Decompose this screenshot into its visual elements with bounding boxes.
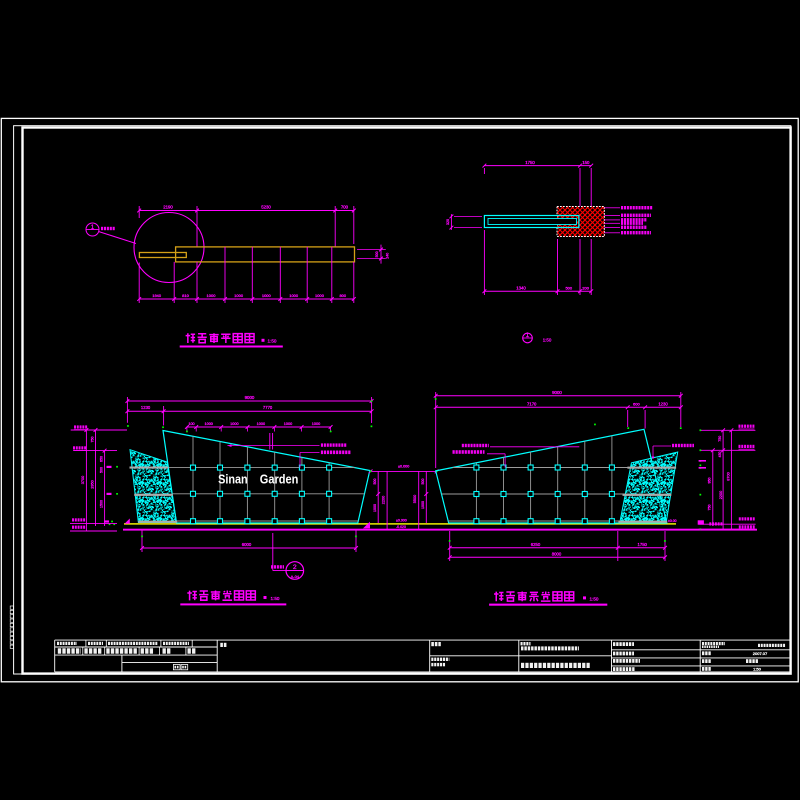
svg-text:1:50: 1:50	[268, 339, 277, 344]
svg-text:2007.07: 2007.07	[753, 651, 768, 656]
svg-text:750: 750	[90, 437, 94, 443]
svg-text:6250: 6250	[531, 542, 541, 547]
svg-text:500: 500	[375, 251, 379, 257]
svg-text:810: 810	[182, 293, 189, 298]
svg-text:3700: 3700	[81, 476, 85, 484]
svg-text:6000: 6000	[242, 542, 252, 547]
svg-text:1340: 1340	[516, 285, 526, 290]
svg-text:5500: 5500	[413, 495, 417, 503]
svg-text:320: 320	[446, 219, 450, 225]
svg-text:2: 2	[293, 564, 297, 571]
svg-text:1000: 1000	[312, 422, 320, 426]
svg-text:500: 500	[565, 285, 572, 290]
svg-text:1000: 1000	[234, 293, 244, 298]
svg-text:1000: 1000	[373, 504, 377, 512]
svg-text:1000: 1000	[315, 293, 325, 298]
svg-text:1940: 1940	[152, 293, 162, 298]
svg-text:1230: 1230	[141, 405, 151, 410]
svg-text:1000: 1000	[207, 293, 217, 298]
svg-text:7770: 7770	[263, 405, 273, 410]
svg-text:1750: 1750	[638, 542, 648, 547]
svg-text:1000: 1000	[230, 422, 238, 426]
svg-text:650: 650	[99, 456, 103, 462]
svg-text:240: 240	[386, 253, 390, 259]
svg-text:1000: 1000	[204, 422, 212, 426]
svg-text:800: 800	[339, 293, 346, 298]
svg-text:±0.000: ±0.000	[396, 519, 407, 523]
svg-text:1000: 1000	[289, 293, 299, 298]
svg-text:1000: 1000	[257, 422, 265, 426]
svg-text:1750: 1750	[525, 160, 535, 165]
svg-text:2950: 2950	[90, 480, 94, 488]
svg-text:9000: 9000	[245, 395, 255, 400]
svg-text:750: 750	[718, 436, 722, 442]
svg-text:500: 500	[99, 467, 103, 473]
svg-text:5230: 5230	[261, 205, 271, 210]
svg-text:500: 500	[421, 479, 425, 485]
svg-text:1000: 1000	[421, 501, 425, 509]
svg-text:A-04: A-04	[291, 574, 300, 579]
svg-text:1000: 1000	[284, 422, 292, 426]
svg-text:150: 150	[582, 160, 590, 165]
svg-text:600: 600	[633, 401, 640, 406]
svg-text:7170: 7170	[527, 401, 537, 406]
svg-text:±0.00: ±0.00	[668, 519, 677, 523]
svg-text:700: 700	[341, 205, 349, 210]
svg-text:1:50: 1:50	[543, 338, 552, 343]
svg-text:1:50: 1:50	[753, 666, 762, 671]
svg-text:500: 500	[373, 479, 377, 485]
svg-text:750: 750	[708, 505, 712, 511]
svg-text:±0.000: ±0.000	[398, 465, 409, 469]
svg-text:8000: 8000	[552, 552, 562, 557]
svg-text:Sinan: Sinan	[218, 472, 248, 487]
svg-text:1000: 1000	[262, 293, 272, 298]
svg-text:200: 200	[582, 285, 589, 290]
svg-text:2200: 2200	[719, 491, 723, 499]
svg-text:950: 950	[708, 478, 712, 484]
svg-text:100: 100	[188, 422, 194, 426]
svg-text:450: 450	[718, 452, 722, 458]
svg-text:1:50: 1:50	[271, 596, 280, 601]
svg-text:Garden: Garden	[260, 472, 299, 487]
svg-text:2190: 2190	[163, 205, 173, 210]
svg-text:1230: 1230	[658, 401, 668, 406]
svg-text:8700: 8700	[726, 472, 730, 480]
svg-text:-0.020: -0.020	[396, 525, 406, 529]
svg-text:2200: 2200	[382, 496, 386, 504]
svg-text:1500: 1500	[99, 500, 103, 508]
svg-text:9000: 9000	[552, 390, 562, 395]
svg-text:1:50: 1:50	[590, 596, 599, 601]
svg-text:1: 1	[526, 332, 530, 339]
